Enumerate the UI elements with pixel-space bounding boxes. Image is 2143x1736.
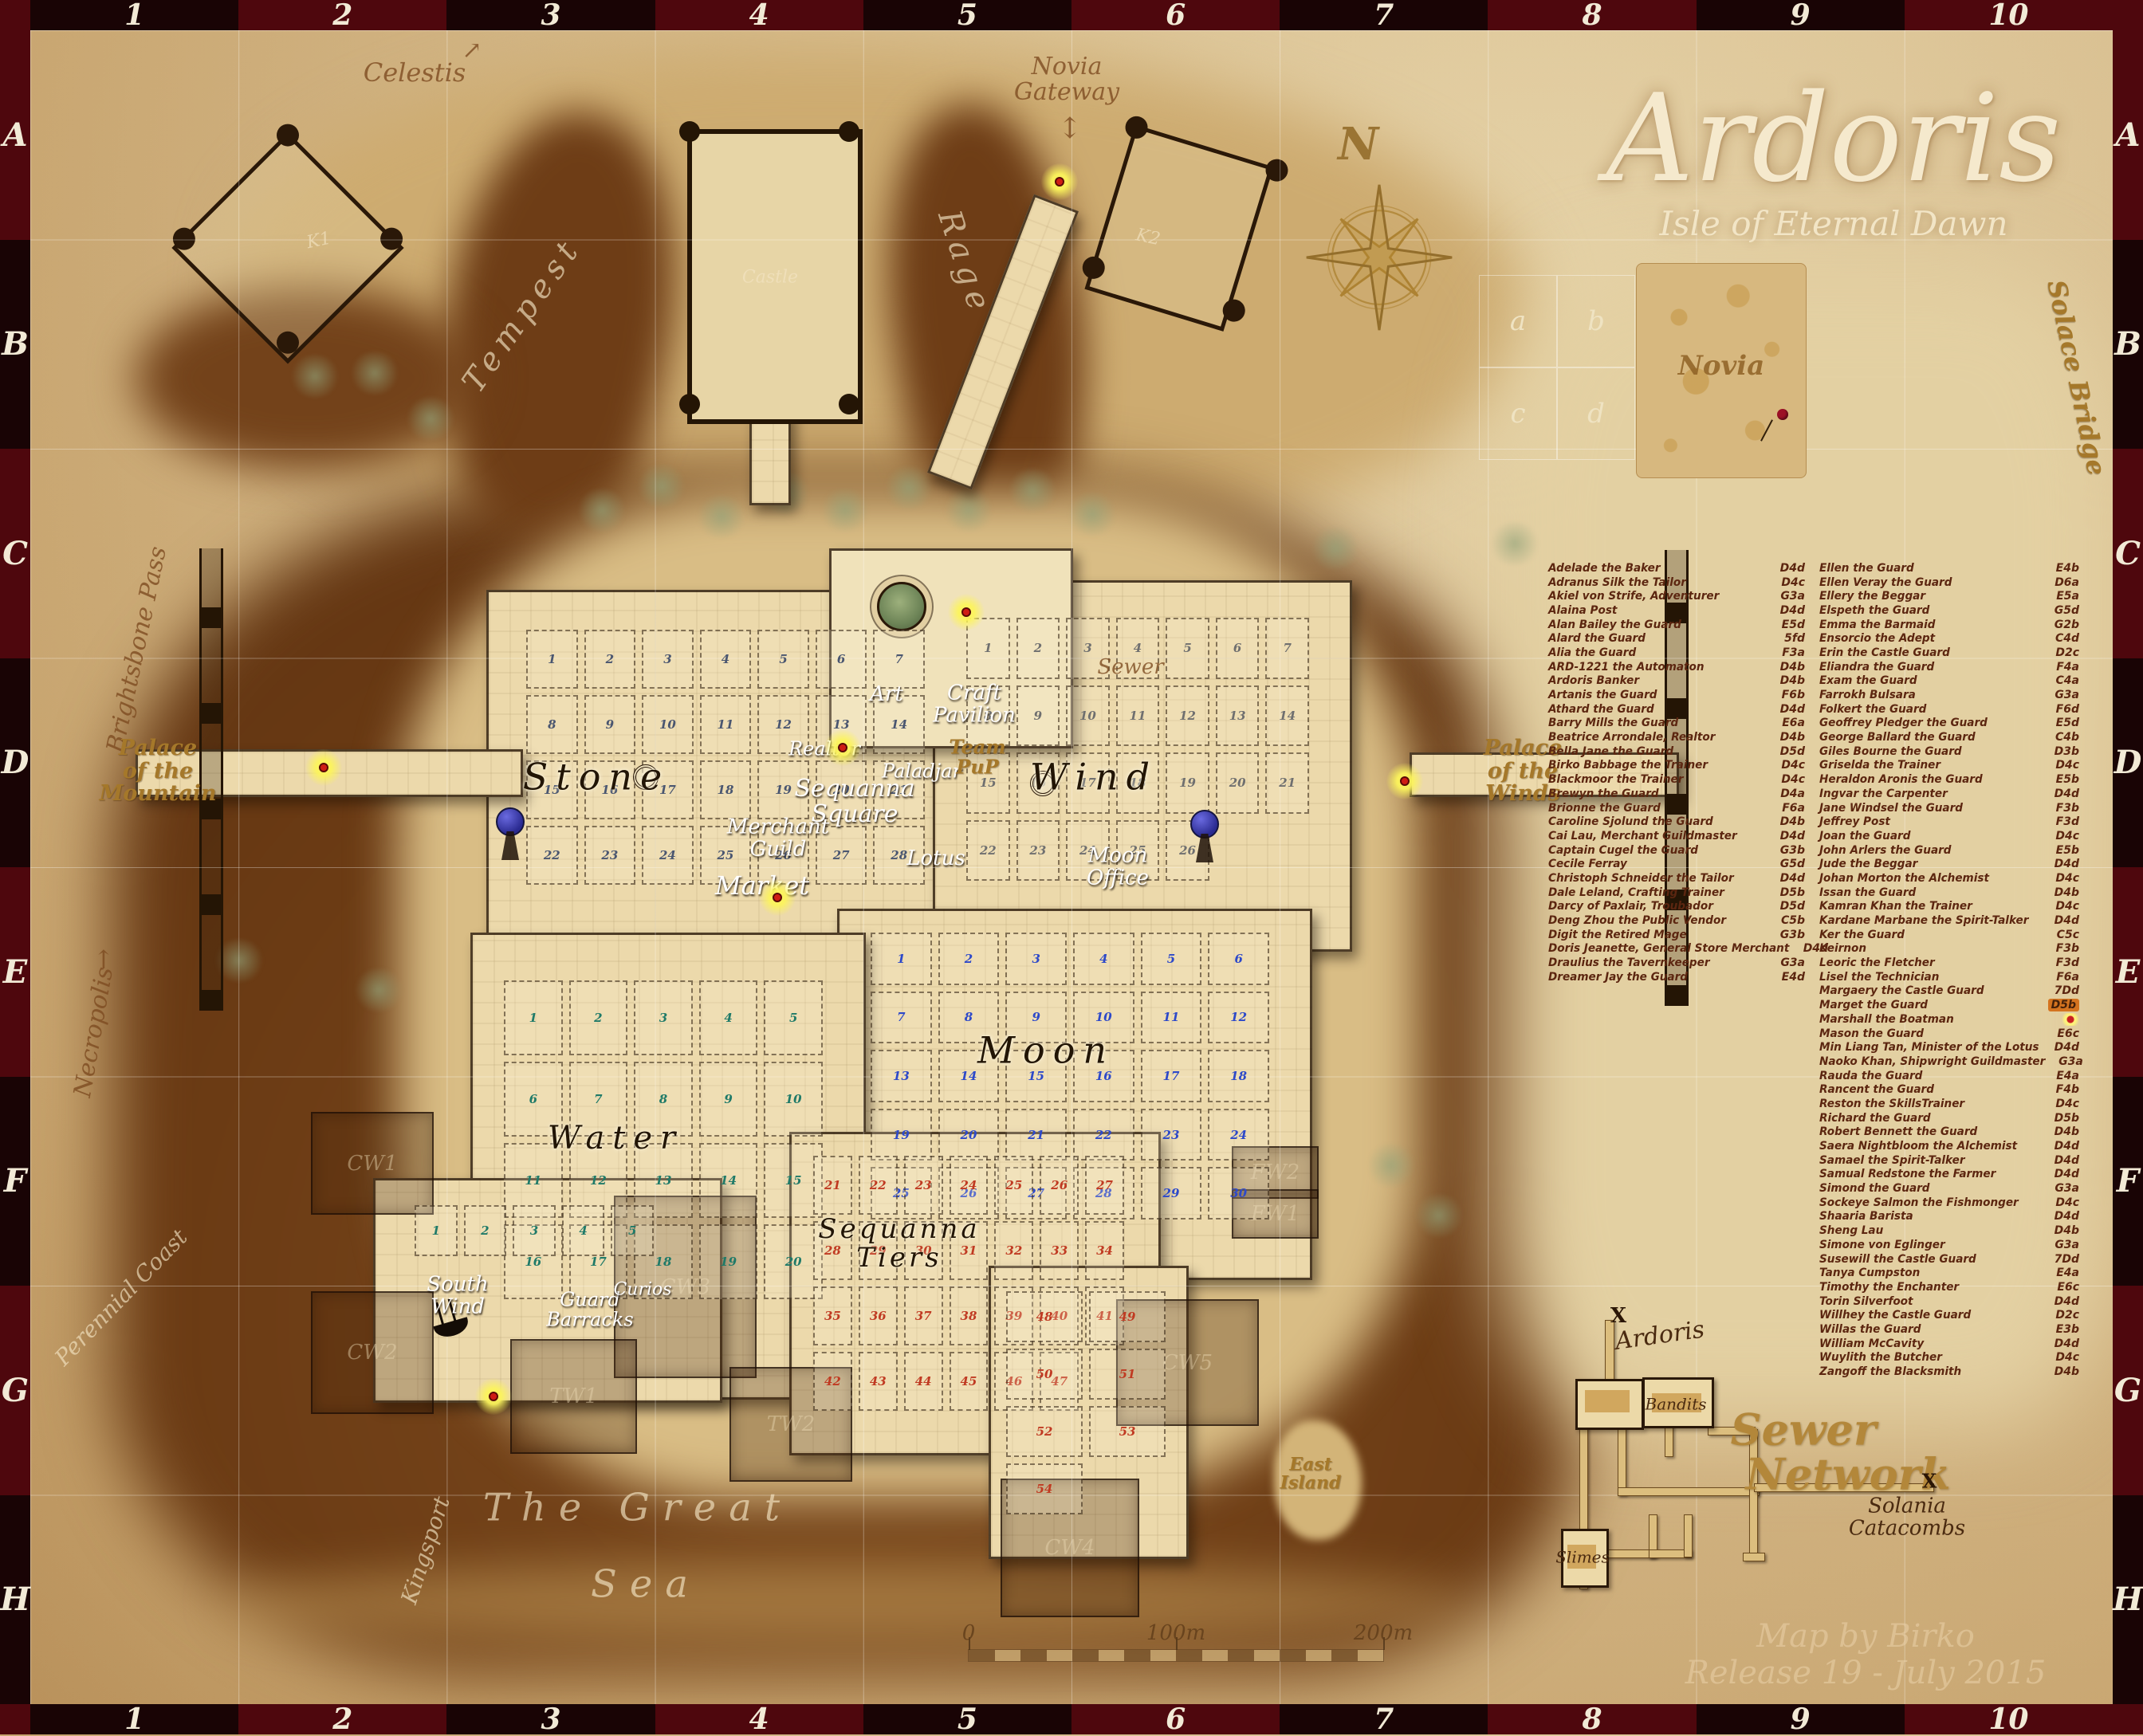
npc-name: Wuylith the Butcher bbox=[1819, 1351, 1942, 1364]
sea-lot-label: CW4 bbox=[1044, 1536, 1095, 1560]
grid-number-cell: 9 bbox=[1697, 1704, 1905, 1734]
map-label-necropolis: Necropolis bbox=[70, 965, 118, 1099]
npc-grid-location: C4a bbox=[2056, 674, 2079, 687]
npc-name: George Ballard the Guard bbox=[1819, 731, 1976, 744]
lot-cell: 1 bbox=[504, 980, 563, 1055]
lot-cell: 43 bbox=[859, 1352, 898, 1411]
npc-name: Athard the Guard bbox=[1548, 703, 1654, 716]
npc-grid-location: G3a bbox=[1780, 956, 1805, 969]
map-label-castle: Castle bbox=[742, 268, 798, 286]
npc-directory-row: Cai Lau, Merchant GuildmasterD4d bbox=[1548, 829, 1805, 843]
npc-name: Simone von Eglinger bbox=[1819, 1239, 1945, 1251]
scale-bar-label: 200m bbox=[1354, 1621, 1413, 1645]
lot-cell: 22 bbox=[859, 1156, 898, 1215]
npc-grid-location: E4a bbox=[2056, 1267, 2079, 1279]
poi-marker-icon bbox=[948, 594, 985, 630]
blue-tower-icon bbox=[1190, 810, 1219, 839]
npc-directory-column-2: Ellen the GuardE4bEllen Veray the GuardD… bbox=[1819, 561, 2079, 1379]
map-label-network: Network bbox=[1745, 1451, 1950, 1497]
npc-directory-row: Rauda the GuardE4a bbox=[1819, 1069, 2079, 1083]
lot-cell: 42 bbox=[813, 1352, 852, 1411]
npc-name: Keirnon bbox=[1819, 942, 1866, 955]
npc-grid-location: D4b bbox=[1780, 661, 1805, 674]
map-label-glyph: ↗ bbox=[462, 38, 482, 64]
map-label-water: Water bbox=[548, 1121, 683, 1155]
tree-blob bbox=[1365, 1144, 1418, 1187]
npc-directory-row: ARD-1221 the AutomatonD4b bbox=[1548, 660, 1805, 674]
map-canvas: N Ardoris Isle of Eternal Dawn abcd Novi… bbox=[0, 0, 2143, 1734]
npc-grid-location: G5d bbox=[2055, 604, 2079, 617]
npc-directory-row: Robert Bennett the GuardD4b bbox=[1819, 1125, 2079, 1140]
lot-cell: 9 bbox=[699, 1062, 758, 1137]
scale-bar-segment bbox=[1306, 1650, 1332, 1661]
npc-directory-row: Jeffrey PostF3d bbox=[1819, 815, 2079, 829]
map-label-moon-office: Moon Office bbox=[1087, 845, 1149, 889]
grid-letter-cell: F bbox=[2113, 1077, 2143, 1286]
lot-cell: 5 bbox=[757, 630, 809, 689]
sewer-pipe bbox=[1684, 1514, 1693, 1557]
npc-directory-row: Marshall the Boatman bbox=[1819, 1012, 2079, 1027]
map-label-kingsport: Kingsport bbox=[397, 1494, 454, 1607]
npc-grid-location: D4d bbox=[1780, 703, 1805, 716]
npc-grid-location: G2b bbox=[2055, 619, 2079, 631]
scale-bar-segment bbox=[1047, 1650, 1073, 1661]
npc-name: Heraldon Aronis the Guard bbox=[1819, 773, 1983, 786]
map-label-art: Art bbox=[870, 684, 903, 706]
npc-grid-location: F6a bbox=[2056, 971, 2079, 984]
lot-cell: 7 bbox=[871, 992, 932, 1044]
poi-marker-icon bbox=[475, 1378, 512, 1415]
npc-directory-row: Richard the GuardD5b bbox=[1819, 1111, 2079, 1125]
lot-cell: 6 bbox=[1208, 933, 1269, 985]
grid-number-cell: 9 bbox=[1697, 0, 1905, 30]
npc-grid-location: D5b bbox=[2055, 1112, 2079, 1125]
lot-cell: 5 bbox=[1141, 933, 1202, 985]
grid-number-cell: 8 bbox=[1488, 1704, 1696, 1734]
npc-grid-location: E5b bbox=[2056, 844, 2079, 857]
npc-name: Eliandra the Guard bbox=[1819, 661, 1934, 674]
npc-name: Emma the Barmaid bbox=[1819, 619, 1935, 631]
map-title: Ardoris bbox=[1587, 78, 2081, 199]
npc-name: Rancent the Guard bbox=[1819, 1083, 1934, 1096]
npc-name: Brewyn the Guard bbox=[1548, 787, 1659, 800]
npc-directory-row: Eliandra the GuardF4a bbox=[1819, 660, 2079, 674]
lot-cell: 3 bbox=[634, 980, 693, 1055]
npc-name: Giles Bourne the Guard bbox=[1819, 745, 1962, 758]
lot-cell: 48 bbox=[1006, 1291, 1083, 1342]
lot-cell: 30 bbox=[1208, 1167, 1269, 1220]
grid-letter-cell: G bbox=[2113, 1286, 2143, 1495]
npc-name: Ensorcio the Adept bbox=[1819, 632, 1935, 645]
npc-grid-location: F6d bbox=[2056, 703, 2079, 716]
lot-cell: 18 bbox=[1208, 1050, 1269, 1102]
npc-grid-location: E6c bbox=[2057, 1281, 2079, 1294]
npc-name: Johan Morton the Alchemist bbox=[1819, 872, 1989, 885]
grid-letter-cell: C bbox=[0, 449, 30, 658]
npc-directory-row: Barry Mills the GuardE6a bbox=[1548, 717, 1805, 731]
npc-name: Zangoff the Blacksmith bbox=[1819, 1365, 1961, 1378]
lot-cell: 14 bbox=[1265, 685, 1309, 747]
npc-grid-location: D4b bbox=[1780, 674, 1805, 687]
npc-grid-location: E6c bbox=[2057, 1027, 2079, 1040]
npc-name: Kamran Khan the Trainer bbox=[1819, 900, 1972, 913]
npc-name: Mason the Guard bbox=[1819, 1027, 1924, 1040]
lot-cell: 19 bbox=[1166, 752, 1209, 814]
map-credits: Map by Birko Release 19 - July 2015 bbox=[1642, 1618, 2089, 1691]
npc-name: Torin Silverfoot bbox=[1819, 1295, 1913, 1308]
npc-grid-location: C4b bbox=[2055, 731, 2079, 744]
npc-directory-row: Willas the GuardE3b bbox=[1819, 1322, 2079, 1337]
npc-directory-row: Naoko Khan, Shipwright GuildmasterG3a bbox=[1819, 1055, 2079, 1069]
npc-directory-row: Dreamer Jay the GuardE4d bbox=[1548, 970, 1805, 984]
npc-name: Ellen the Guard bbox=[1819, 562, 1914, 575]
npc-grid-location: E4b bbox=[2056, 562, 2079, 575]
npc-grid-location: D4d bbox=[1780, 872, 1805, 885]
grid-number-cell: 3 bbox=[446, 0, 655, 30]
npc-directory-row: Mason the GuardE6c bbox=[1819, 1027, 2079, 1041]
npc-grid-location: D4c bbox=[2055, 900, 2079, 913]
npc-name: Artanis the Guard bbox=[1548, 689, 1657, 701]
npc-name: Simond the Guard bbox=[1819, 1182, 1930, 1195]
npc-name: Adelade the Baker bbox=[1548, 562, 1661, 575]
frame-corner-cell bbox=[2113, 0, 2143, 30]
tree-blob bbox=[1309, 527, 1362, 570]
lot-cell: 50 bbox=[1006, 1349, 1083, 1400]
npc-name: Ellen Veray the Guard bbox=[1819, 576, 1952, 589]
scale-bar-segment bbox=[1124, 1650, 1150, 1661]
map-label-x: X bbox=[1922, 1471, 1937, 1491]
npc-name: Ardoris Banker bbox=[1548, 674, 1639, 687]
npc-grid-location: D4d bbox=[2055, 1210, 2079, 1223]
npc-grid-location: D4c bbox=[1781, 773, 1805, 786]
npc-directory-row: Cecile FerrayG5d bbox=[1548, 857, 1805, 871]
grid-number-cell: 10 bbox=[1905, 0, 2113, 30]
scale-bar-segment bbox=[1358, 1650, 1384, 1661]
lot-cell: 24 bbox=[642, 826, 694, 885]
grid-number-cell: 2 bbox=[238, 1704, 446, 1734]
npc-directory-row: Sockeye Salmon the FishmongerD4c bbox=[1819, 1196, 2079, 1210]
npc-name: Jude the Beggar bbox=[1819, 858, 1917, 870]
map-label-sea: Sea bbox=[591, 1565, 701, 1605]
grid-number-cell: 6 bbox=[1071, 1704, 1280, 1734]
npc-grid-location: D4c bbox=[2055, 759, 2079, 772]
npc-directory-row: Draulius the TavernkeeperG3a bbox=[1548, 956, 1805, 970]
map-label-k2: K2 bbox=[1134, 226, 1162, 249]
npc-grid-location: D4c bbox=[2055, 1196, 2079, 1209]
lot-cell: 37 bbox=[904, 1286, 943, 1345]
npc-name: Reston the SkillsTrainer bbox=[1819, 1098, 1964, 1110]
npc-name: Birko Babbage the Trainer bbox=[1548, 759, 1708, 772]
lot-cell: 24 bbox=[1208, 1109, 1269, 1161]
npc-directory-row: William McCavityD4d bbox=[1819, 1337, 2079, 1351]
npc-name: Folkert the Guard bbox=[1819, 703, 1926, 716]
scale-bar-segment bbox=[1280, 1650, 1306, 1661]
npc-name: Erin the Castle Guard bbox=[1819, 646, 1950, 659]
npc-grid-location: 7Dd bbox=[2055, 1253, 2079, 1266]
npc-grid-location: D4d bbox=[2055, 858, 2079, 870]
npc-name: Cecile Ferray bbox=[1548, 858, 1627, 870]
npc-directory-row: Doris Jeanette, General Store MerchantD4… bbox=[1548, 942, 1805, 956]
npc-grid-location: D4c bbox=[2055, 1098, 2079, 1110]
credits-release: Release 19 - July 2015 bbox=[1642, 1655, 2089, 1691]
npc-name: Rauda the Guard bbox=[1819, 1070, 1922, 1082]
npc-directory-row: Birko Babbage the TrainerD4c bbox=[1548, 759, 1805, 773]
npc-grid-location: E4d bbox=[1782, 971, 1805, 984]
npc-directory-row: Deng Zhou the Public VendorC5b bbox=[1548, 913, 1805, 928]
novia-inset-map: Novia bbox=[1636, 263, 1807, 478]
lot-cell: 6 bbox=[816, 630, 867, 689]
npc-name: Saera Nightbloom the Alchemist bbox=[1819, 1140, 2017, 1153]
lot-cell: 12 bbox=[1166, 685, 1209, 747]
sea-lot-label: TW1 bbox=[549, 1384, 598, 1408]
lot-cell: 11 bbox=[700, 695, 752, 754]
scale-bar-segment bbox=[995, 1650, 1021, 1661]
quadrant-letter: b bbox=[1557, 275, 1635, 367]
lot-cell: 11 bbox=[1141, 992, 1202, 1044]
lot-grid: 12345 bbox=[415, 1205, 654, 1256]
scale-bar bbox=[969, 1650, 1383, 1661]
npc-directory-row: Emma the BarmaidG2b bbox=[1819, 618, 2079, 632]
npc-directory-row: Ellen the GuardE4b bbox=[1819, 561, 2079, 575]
grid-number-cell: 4 bbox=[655, 1704, 863, 1734]
npc-directory-row: Blackmoor the TrainerD4c bbox=[1548, 772, 1805, 787]
lot-cell: 21 bbox=[1265, 752, 1309, 814]
tree-blob bbox=[1066, 493, 1119, 536]
npc-grid-location: F4b bbox=[2056, 1083, 2079, 1096]
npc-grid-location: D4d bbox=[2055, 914, 2079, 927]
npc-grid-location: D4c bbox=[2055, 830, 2079, 842]
compass-north-label: N bbox=[1338, 118, 1378, 171]
npc-directory-row: Zangoff the BlacksmithD4b bbox=[1819, 1365, 2079, 1379]
npc-name: Exam the Guard bbox=[1819, 674, 1917, 687]
lot-cell: 6 bbox=[1216, 618, 1260, 679]
grid-letter-cell: B bbox=[2113, 240, 2143, 450]
ardoris-map-page: { "border": { "numbers": ["1","2","3","4… bbox=[0, 0, 2143, 1734]
grid-letter-cell: C bbox=[2113, 449, 2143, 658]
tree-blob bbox=[635, 465, 688, 508]
grid-letter-cell: H bbox=[0, 1495, 30, 1705]
lot-cell: 21 bbox=[1005, 1109, 1067, 1161]
npc-name: Samael the Spirit-Talker bbox=[1819, 1154, 1965, 1167]
tree-blob bbox=[289, 355, 341, 398]
npc-grid-location: C5c bbox=[2057, 929, 2079, 941]
lot-cell: 2 bbox=[584, 630, 636, 689]
map-subtitle: Isle of Eternal Dawn bbox=[1587, 204, 2081, 243]
blue-tower-icon bbox=[496, 807, 525, 836]
npc-directory-row: Reston the SkillsTrainerD4c bbox=[1819, 1097, 2079, 1111]
map-label-solania-catacombs: Solania Catacombs bbox=[1849, 1495, 1965, 1539]
lot-cell: 51 bbox=[1089, 1349, 1166, 1400]
npc-directory-row: Digit the Retired MageG3b bbox=[1548, 928, 1805, 942]
grid-letter-cell: H bbox=[2113, 1495, 2143, 1705]
poi-marker-icon bbox=[305, 749, 342, 786]
map-label-celestis: Celestis bbox=[364, 60, 466, 87]
grid-letter-cell: F bbox=[0, 1077, 30, 1286]
npc-directory-row: Ardoris BankerD4b bbox=[1548, 674, 1805, 689]
npc-grid-location: D4d bbox=[1780, 830, 1805, 842]
npc-directory-row: Brionne the GuardF6a bbox=[1548, 801, 1805, 815]
lot-cell: 7 bbox=[873, 630, 925, 689]
grid-number-cell: 2 bbox=[238, 0, 446, 30]
map-label-sequanna-tiers: Sequanna Tiers bbox=[818, 1215, 980, 1272]
lot-cell: 27 bbox=[1085, 1156, 1124, 1215]
npc-name: Joan the Guard bbox=[1819, 830, 1910, 842]
lot-cell: 10 bbox=[1066, 685, 1110, 747]
lot-cell: 38 bbox=[950, 1286, 989, 1345]
npc-directory-row: George Ballard the GuardC4b bbox=[1819, 730, 2079, 744]
lot-cell: 4 bbox=[1073, 933, 1134, 985]
npc-directory-row: Giles Bourne the GuardD3b bbox=[1819, 744, 2079, 759]
npc-grid-location: D2c bbox=[2055, 1309, 2079, 1322]
npc-grid-location: D4d bbox=[2055, 787, 2079, 800]
lot-cell: 22 bbox=[966, 820, 1010, 882]
npc-name: Griselda the Trainer bbox=[1819, 759, 1940, 772]
grid-number-cell: 1 bbox=[30, 0, 238, 30]
npc-directory-row: Torin SilverfootD4d bbox=[1819, 1294, 2079, 1309]
npc-directory-row: John Arlers the GuardE5b bbox=[1819, 843, 2079, 858]
lot-cell: 2 bbox=[464, 1205, 507, 1256]
npc-name: Leoric the Fletcher bbox=[1819, 956, 1935, 969]
npc-directory-row: Elspeth the GuardG5d bbox=[1819, 603, 2079, 618]
npc-name: Deng Zhou the Public Vendor bbox=[1548, 914, 1726, 927]
npc-directory-row: Jane Windsel the GuardF3b bbox=[1819, 801, 2079, 815]
npc-directory-row: Samael the Spirit-TalkerD4d bbox=[1819, 1153, 2079, 1168]
npc-grid-location: D4d bbox=[2055, 1154, 2079, 1167]
poi-marker-icon bbox=[1386, 763, 1423, 799]
npc-name: ARD-1221 the Automaton bbox=[1548, 661, 1705, 674]
map-label-novia-gateway: Novia Gateway bbox=[1014, 54, 1119, 105]
lot-cell: 2 bbox=[938, 933, 1000, 985]
sea-lot-label: CW2 bbox=[347, 1341, 397, 1365]
scale-bar-segment bbox=[1020, 1650, 1047, 1661]
npc-directory-row: Alia the GuardF3a bbox=[1548, 646, 1805, 660]
npc-grid-location: D5b bbox=[2048, 999, 2079, 1011]
npc-directory-row: Alard the Guard5fd bbox=[1548, 631, 1805, 646]
npc-grid-location: E6a bbox=[1782, 717, 1805, 729]
lot-cell: 4 bbox=[562, 1205, 605, 1256]
map-label-curios: Curios bbox=[613, 1280, 671, 1298]
map-label-brightsbone-pass: Brightsbone Pass bbox=[103, 544, 171, 755]
npc-grid-location: D4d bbox=[2055, 1140, 2079, 1153]
npc-grid-location: G3a bbox=[1780, 590, 1805, 603]
lot-cell: 52 bbox=[1006, 1406, 1083, 1457]
lot-cell: 22 bbox=[526, 826, 578, 885]
npc-grid-location: D2c bbox=[2055, 646, 2079, 659]
npc-name: Adranus Silk the Tailor bbox=[1548, 576, 1686, 589]
lot-cell: 23 bbox=[1141, 1109, 1202, 1161]
grid-letter-cell: D bbox=[0, 658, 30, 868]
npc-name: Farrokh Bulsara bbox=[1819, 689, 1916, 701]
npc-directory-row: Griselda the TrainerD4c bbox=[1819, 759, 2079, 773]
npc-name: Robert Bennett the Guard bbox=[1819, 1125, 1977, 1138]
grid-letter-cell: E bbox=[0, 867, 30, 1077]
npc-name: Captain Cugel the Guard bbox=[1548, 844, 1698, 857]
npc-directory-row: Kardane Marbane the Spirit-TalkerD4d bbox=[1819, 913, 2079, 928]
scale-bar-segment bbox=[1331, 1650, 1358, 1661]
lot-cell: 9 bbox=[1016, 685, 1060, 747]
lot-cell: 33 bbox=[1040, 1221, 1079, 1280]
npc-grid-location: E5b bbox=[2056, 773, 2079, 786]
poi-marker-icon bbox=[824, 729, 861, 766]
lot-cell: 2 bbox=[1016, 618, 1060, 679]
map-label-solace-bridge: Solace Bridge bbox=[2042, 277, 2110, 477]
lot-cell: 13 bbox=[871, 1050, 932, 1102]
npc-directory-row: Tanya CumpstonE4a bbox=[1819, 1266, 2079, 1280]
npc-directory-row: Brewyn the GuardD4a bbox=[1548, 787, 1805, 801]
npc-directory-row: Willhey the Castle GuardD2c bbox=[1819, 1308, 2079, 1322]
npc-directory-row: Lisel the TechnicianF6a bbox=[1819, 970, 2079, 984]
temple-dome-icon bbox=[877, 582, 926, 631]
scale-bar-segment bbox=[1072, 1650, 1099, 1661]
scale-bar-label: 0 bbox=[962, 1621, 976, 1645]
npc-name: Ingvar the Carpenter bbox=[1819, 787, 1948, 800]
npc-name: Dreamer Jay the Guard bbox=[1548, 971, 1688, 984]
lot-cell: 3 bbox=[513, 1205, 556, 1256]
npc-name: Alard the Guard bbox=[1548, 632, 1646, 645]
npc-directory-row: Min Liang Tan, Minister of the LotusD4d bbox=[1819, 1040, 2079, 1055]
npc-directory-row: Shaaria BaristaD4d bbox=[1819, 1210, 2079, 1224]
npc-name: Barry Mills the Guard bbox=[1548, 717, 1678, 729]
npc-grid-location: D3b bbox=[2055, 745, 2079, 758]
sewer-pipe bbox=[1579, 1424, 1588, 1546]
lot-cell: 20 bbox=[1216, 752, 1260, 814]
map-label-team-pup: Team PuP bbox=[949, 737, 1005, 778]
grid-number-cell: 8 bbox=[1488, 0, 1696, 30]
scale-bar-segment bbox=[1202, 1650, 1229, 1661]
npc-directory-row: Artanis the GuardF6b bbox=[1548, 688, 1805, 702]
npc-directory-row: Farrokh BulsaraG3a bbox=[1819, 688, 2079, 702]
npc-name: Beatrice Arrondale, Realtor bbox=[1548, 731, 1715, 744]
lot-cell: 10 bbox=[764, 1062, 823, 1137]
npc-name: Darcy of Paxlair, Troubador bbox=[1548, 900, 1713, 913]
npc-name: Alaina Post bbox=[1548, 604, 1617, 617]
npc-grid-location: C5b bbox=[1781, 914, 1805, 927]
lot-cell: 12 bbox=[1208, 992, 1269, 1044]
npc-grid-location: F6a bbox=[1782, 802, 1805, 815]
scale-bar-segment bbox=[1254, 1650, 1280, 1661]
map-label-palace-of-the-mountain: Palace of the Mountain bbox=[99, 737, 216, 806]
npc-grid-location: D4d bbox=[2055, 1337, 2079, 1350]
lot-cell: 23 bbox=[1016, 820, 1060, 882]
lot-cell: 18 bbox=[700, 760, 752, 819]
sewer-pipe bbox=[1743, 1553, 1765, 1561]
npc-name: Marshall the Boatman bbox=[1819, 1013, 1954, 1026]
sewer-pipe bbox=[1618, 1487, 1760, 1496]
npc-grid-location: E3b bbox=[2056, 1323, 2079, 1336]
npc-grid-location: D4b bbox=[2055, 1365, 2079, 1378]
npc-name: Sheng Lau bbox=[1819, 1224, 1883, 1237]
npc-name: John Arlers the Guard bbox=[1819, 844, 1952, 857]
lot-cell: 22 bbox=[1073, 1109, 1134, 1161]
npc-name: Marget the Guard bbox=[1819, 999, 1928, 1011]
frame-corner-cell bbox=[2113, 1704, 2143, 1734]
lot-grid: 48495051525354 bbox=[1006, 1291, 1166, 1514]
npc-directory-row: Geoffrey Pledger the GuardE5d bbox=[1819, 717, 2079, 731]
npc-grid-location: F3a bbox=[1782, 646, 1805, 659]
fort-structure bbox=[1084, 124, 1273, 332]
npc-grid-location: D5b bbox=[1780, 886, 1805, 899]
npc-directory-row: Ker the GuardC5c bbox=[1819, 928, 2079, 942]
map-label-east-island: East Island bbox=[1280, 1456, 1342, 1494]
grid-letter-cell: E bbox=[2113, 867, 2143, 1077]
scale-bar-segment bbox=[1150, 1650, 1177, 1661]
npc-directory-row: Dale Leland, Crafting TrainerD5b bbox=[1548, 886, 1805, 900]
sewer-pipe bbox=[1618, 1424, 1626, 1495]
npc-grid-location: E5d bbox=[1782, 619, 1805, 631]
npc-directory-row: Ellen Veray the GuardD6a bbox=[1819, 575, 2079, 590]
npc-name: Naoko Khan, Shipwright Guildmaster bbox=[1819, 1055, 2045, 1068]
npc-grid-location: D5d bbox=[1780, 745, 1805, 758]
